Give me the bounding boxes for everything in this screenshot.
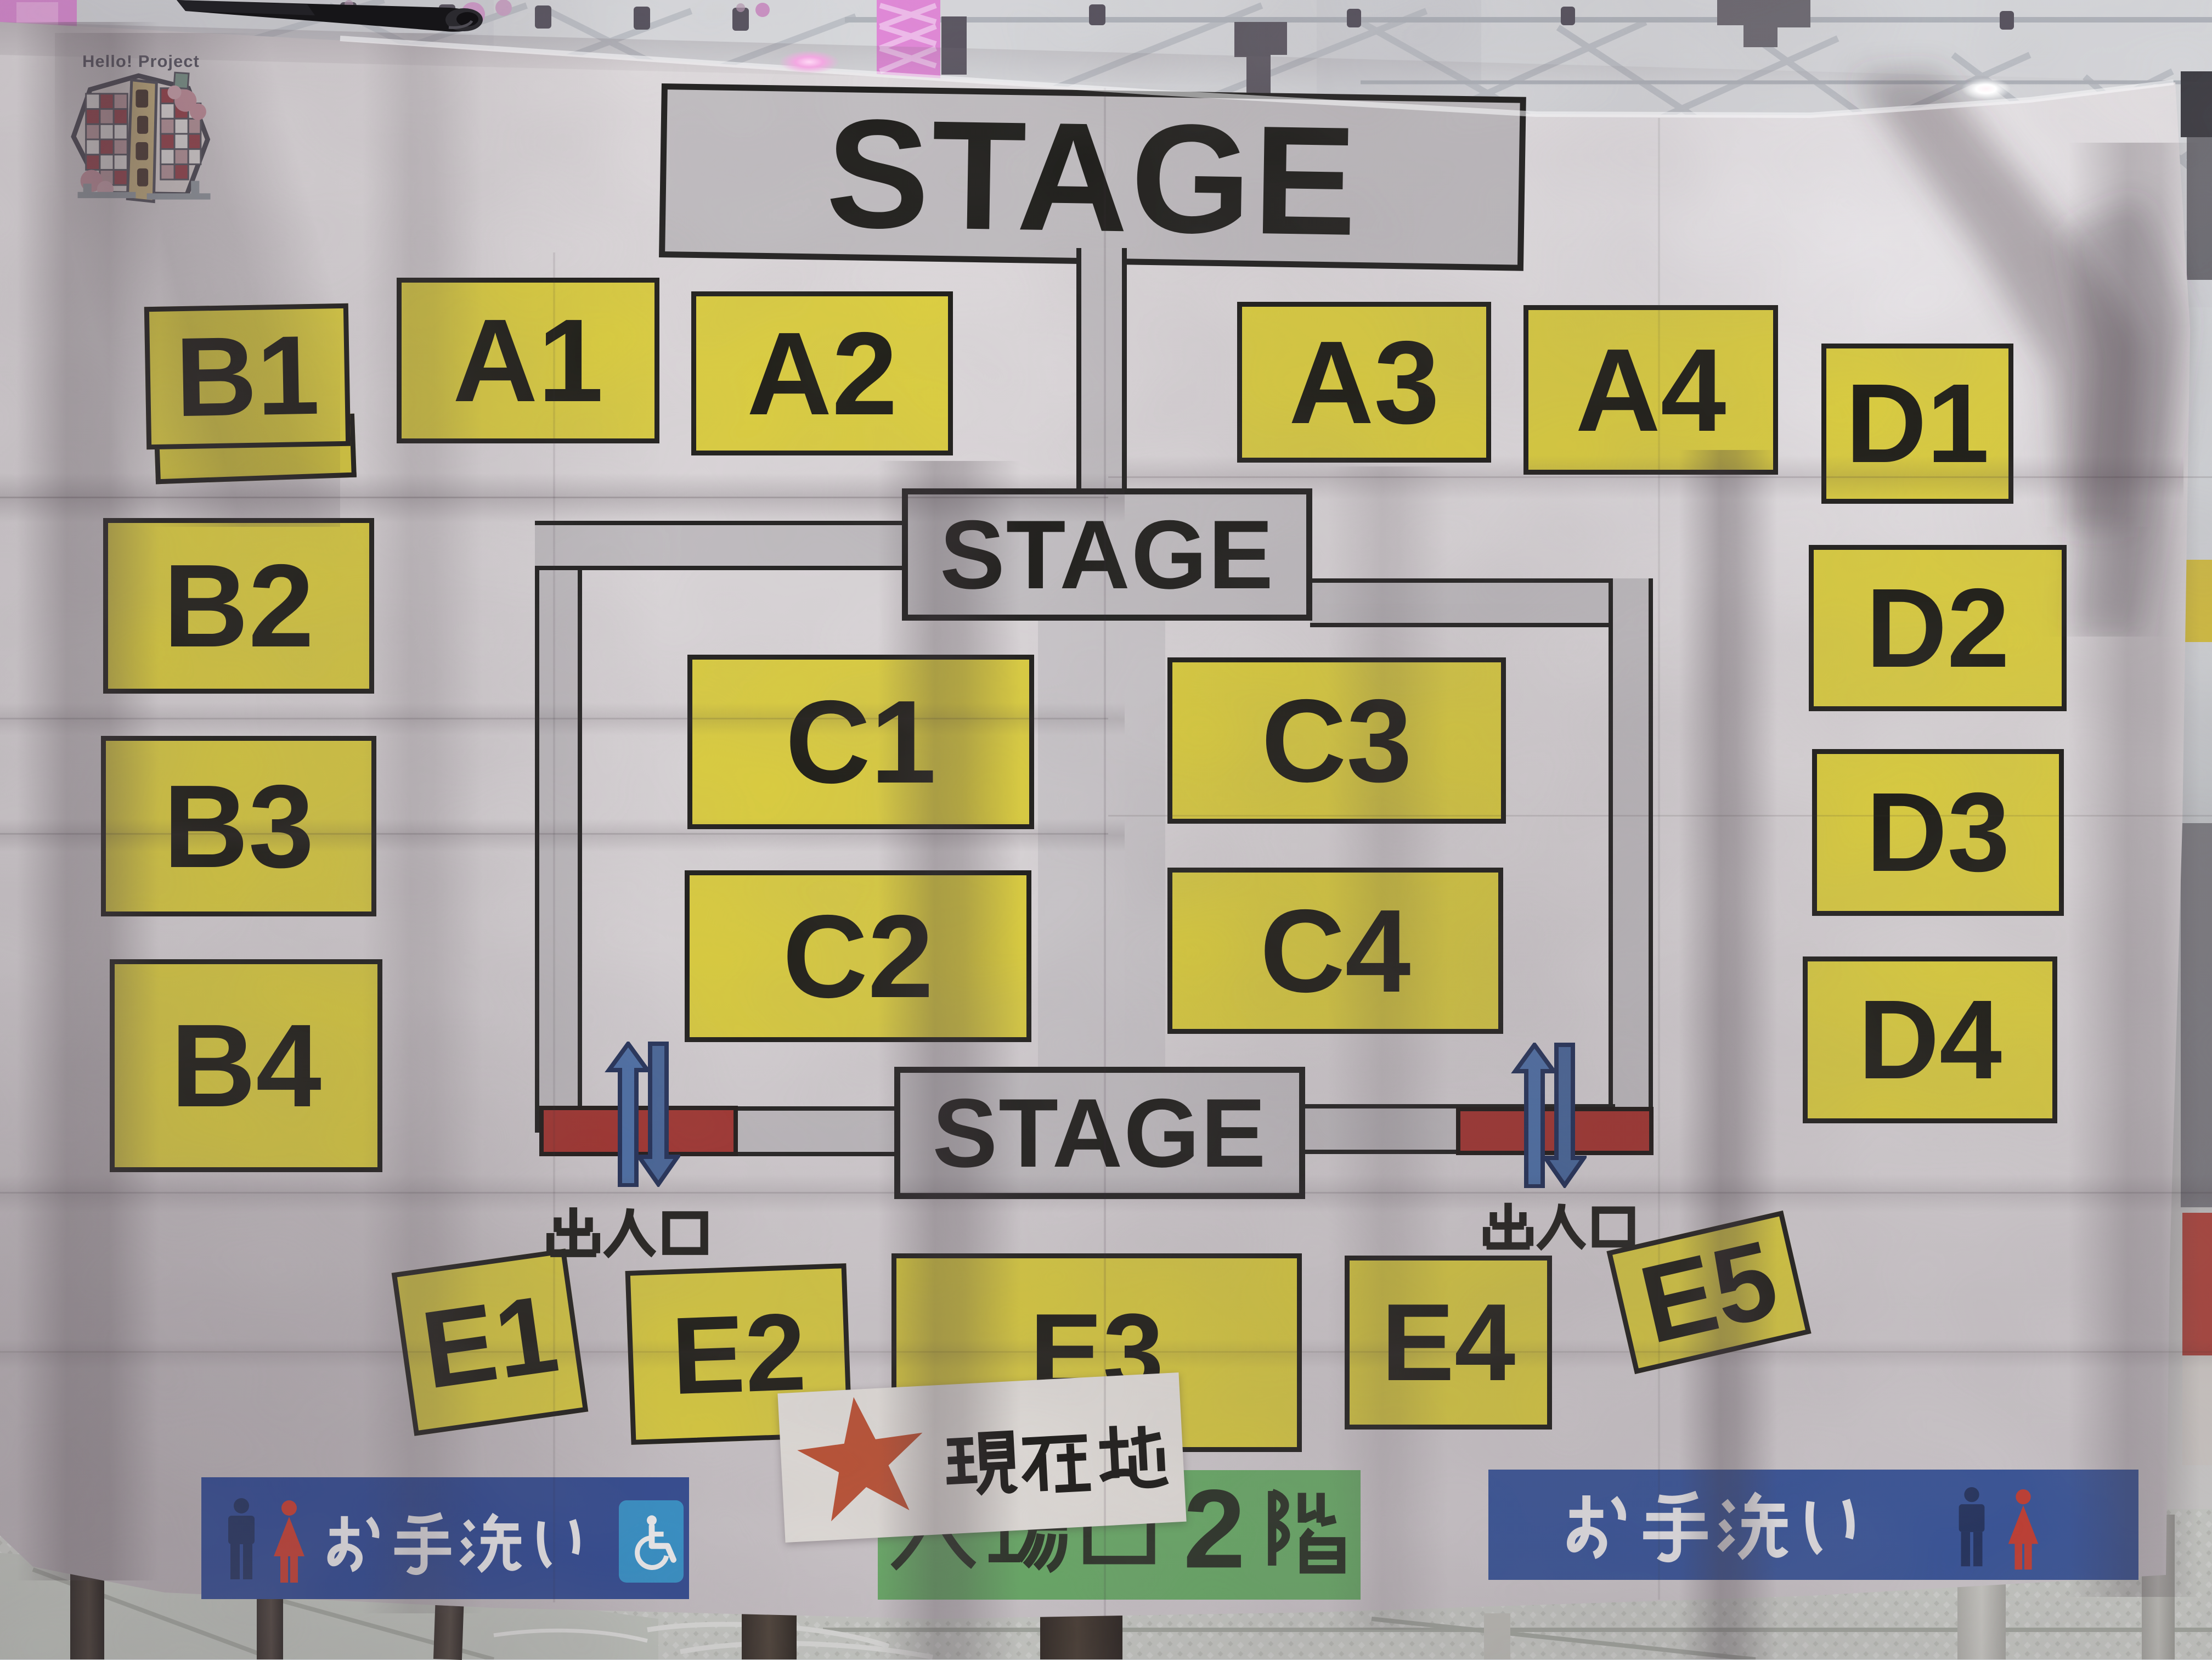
svg-text:2: 2 — [1183, 1482, 1245, 1575]
